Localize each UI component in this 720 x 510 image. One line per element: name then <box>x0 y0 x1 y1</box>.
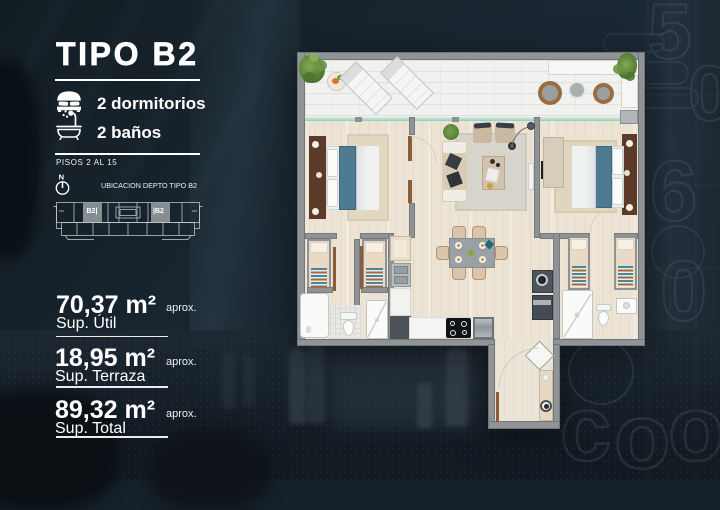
svg-text:0: 0 <box>660 244 707 339</box>
svg-text:N: N <box>59 173 64 182</box>
svg-text:0: 0 <box>688 49 720 137</box>
svg-text:|B2: |B2 <box>153 208 164 215</box>
svg-text:6: 6 <box>650 144 697 239</box>
svg-text:o: o <box>668 378 720 480</box>
svg-text:B2|: B2| <box>87 208 98 215</box>
